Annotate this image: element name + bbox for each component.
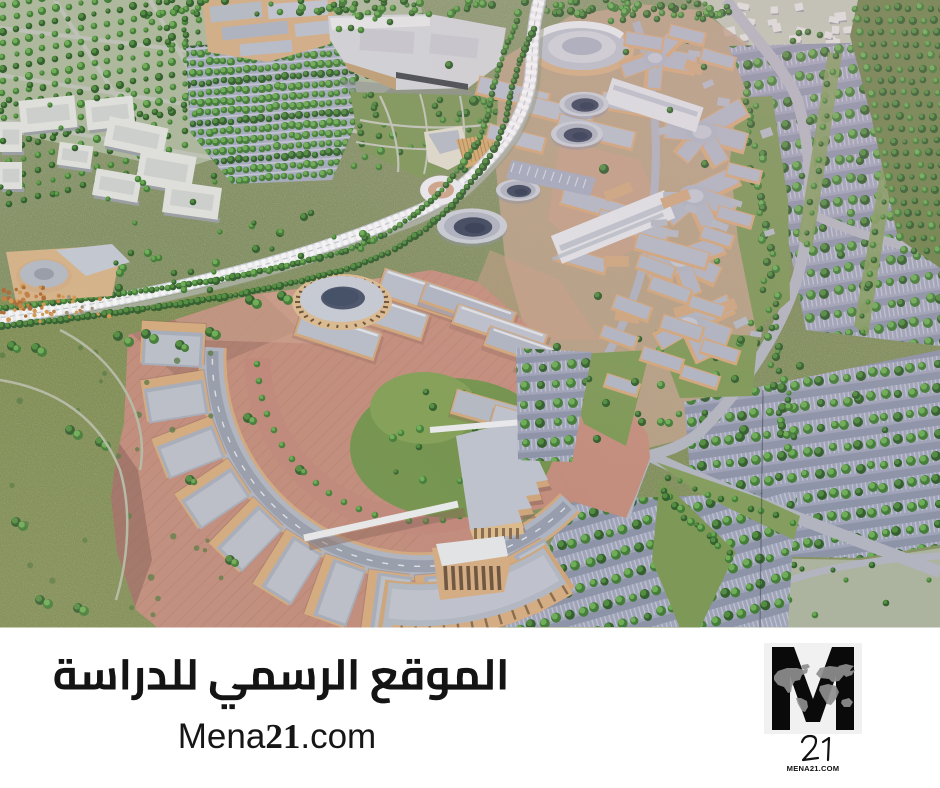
svg-text:Mena21.com: Mena21.com (178, 717, 376, 756)
svg-text:MENA21.COM: MENA21.COM (787, 764, 840, 773)
